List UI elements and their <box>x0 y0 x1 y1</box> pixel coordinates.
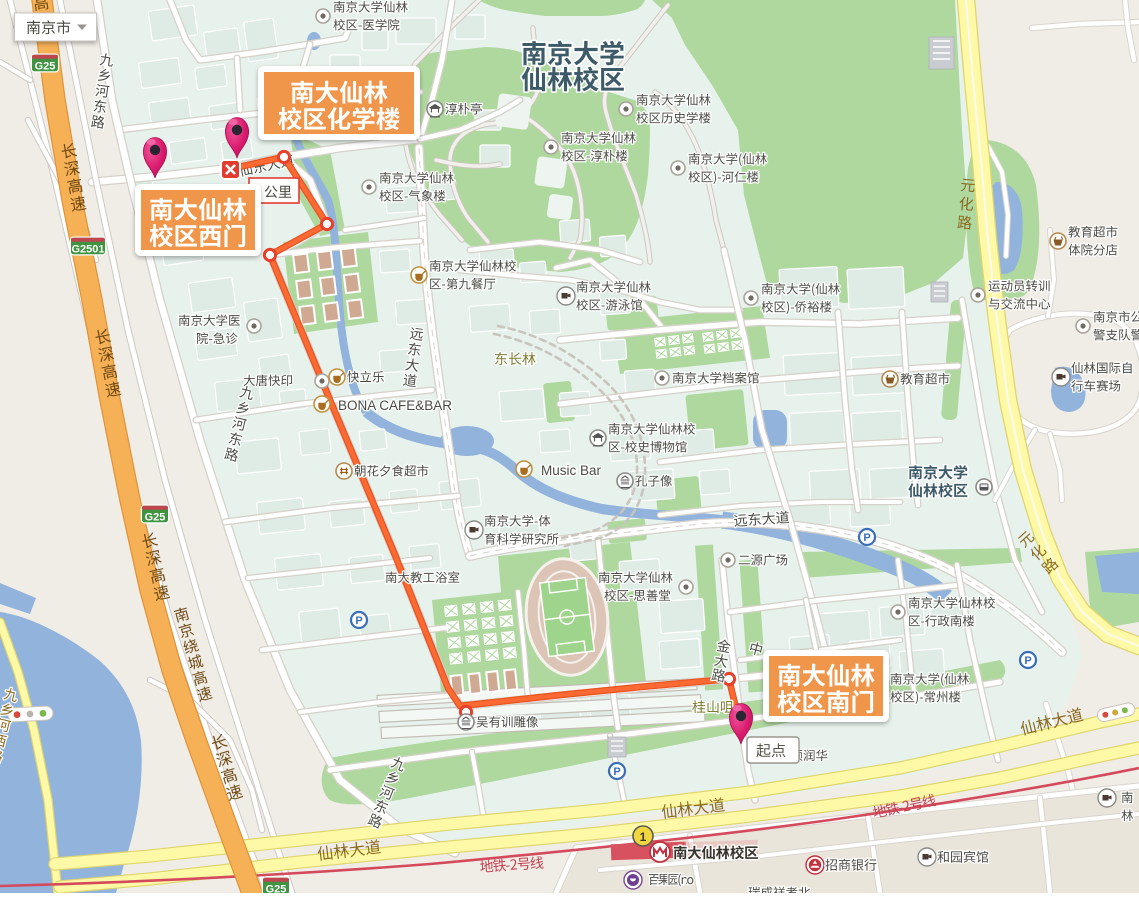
svg-text:P: P <box>1024 655 1031 667</box>
svg-text:G25: G25 <box>266 884 287 894</box>
svg-text:Music Bar: Music Bar <box>541 463 602 478</box>
svg-text:1: 1 <box>640 830 647 844</box>
svg-text:G25: G25 <box>35 61 56 73</box>
svg-text:G25: G25 <box>145 512 166 524</box>
svg-text:P: P <box>863 532 870 544</box>
svg-text:P: P <box>355 615 362 627</box>
svg-text:P: P <box>613 766 620 778</box>
svg-text:BONA CAFE&BAR: BONA CAFE&BAR <box>338 398 452 413</box>
svg-text:G2501: G2501 <box>71 244 104 256</box>
